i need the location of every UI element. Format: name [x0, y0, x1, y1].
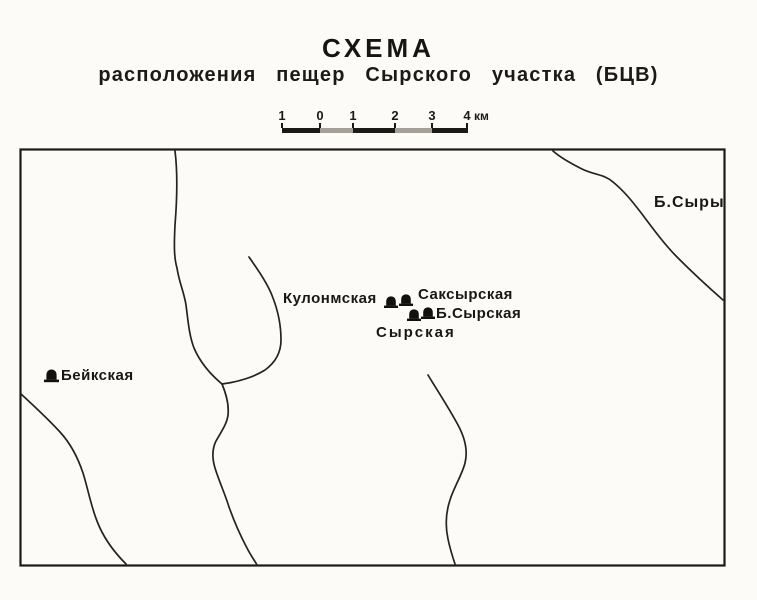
cave-label-saksyrskaya: Саксырская [418, 286, 513, 303]
cave-icon [421, 307, 435, 319]
scanned-map-page: СХЕМА расположения пещер Сырского участк… [0, 0, 757, 600]
river-middle-tributary [222, 257, 281, 384]
cave-icon [384, 296, 398, 308]
cave-label-beykskaya: Бейкская [61, 367, 134, 384]
cave-icon [407, 309, 421, 321]
cave-label-syrskaya: Сырская [376, 324, 456, 341]
settlement-label-b-syry: Б.Сыры [654, 194, 725, 212]
river-center-right [428, 375, 466, 564]
river-main-stem [213, 384, 257, 565]
river-lines [21, 151, 723, 565]
river-top-right [553, 151, 723, 300]
river-left-tributary [174, 151, 222, 384]
cave-icon [399, 294, 413, 306]
river-bottom-left [21, 394, 126, 564]
map-drawing [0, 0, 757, 600]
cave-label-kulonmskaya: Кулонмская [283, 290, 377, 307]
cave-icon [44, 370, 59, 383]
map-frame [21, 150, 725, 566]
cave-label-b-syrskaya: Б.Сырская [436, 305, 521, 322]
